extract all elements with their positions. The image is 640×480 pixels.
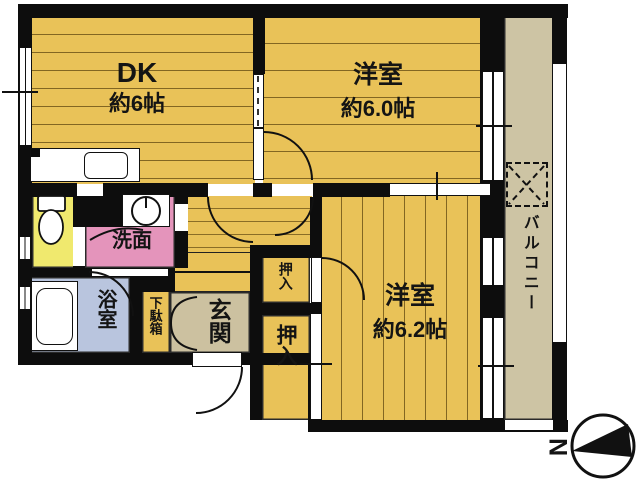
- kitchen-stove-dot: [31, 149, 40, 157]
- door-leaf-closet-small: [311, 257, 322, 303]
- tick-window-bedroom2: [478, 365, 514, 367]
- hallway-floor: [186, 195, 312, 252]
- label-bedroom1-name: 洋室: [330, 62, 426, 88]
- label-dk-name: DK: [92, 58, 182, 87]
- tick-window-dk: [2, 91, 38, 93]
- window-bedroom2-balcony-upper: [482, 238, 504, 285]
- window-toilet-left: [19, 237, 31, 259]
- label-bedroom2-name: 洋室: [362, 283, 458, 309]
- label-closet-small: 押入: [278, 262, 293, 290]
- room-toilet-floor: [32, 193, 75, 268]
- door-arc-entrance: [196, 367, 242, 413]
- tick-window-bedroom1: [476, 125, 512, 127]
- label-dk-size: 約6帖: [82, 92, 192, 115]
- wall-balcony-right-top: [552, 4, 567, 66]
- window-bedroom2-balcony-lower: [482, 318, 504, 418]
- balcony-sill: [505, 420, 553, 430]
- label-washroom: 洗面: [101, 231, 163, 252]
- tick-closet-slider: [300, 363, 332, 365]
- wall-mid-1: [32, 183, 77, 197]
- kitchen-sink: [84, 152, 128, 179]
- label-bathroom: 浴室: [94, 289, 115, 329]
- balcony-railing: [552, 64, 567, 342]
- wall-mid-3: [313, 183, 390, 197]
- doorway-bedroom1: [272, 184, 313, 196]
- washing-machine-box: [122, 194, 170, 227]
- doorway-dk-hall: [208, 184, 253, 196]
- opening-dk-washroom: [77, 184, 103, 196]
- tick-partition: [436, 172, 438, 200]
- sliding-door-dashed-track: [257, 76, 259, 126]
- bathtub: [36, 288, 73, 345]
- doorway-washroom: [175, 204, 188, 231]
- wall-dk-bedroom1-divider: [253, 16, 265, 74]
- wall-balcony-right-bottom: [552, 342, 567, 432]
- label-closet-large: 押入: [274, 324, 296, 366]
- compass: [572, 415, 634, 477]
- compass-needle: [572, 424, 632, 457]
- washer-pan-balcony: [506, 162, 548, 207]
- window-dk-left: [19, 48, 32, 145]
- door-leaf-bedroom1: [253, 128, 264, 180]
- label-shoe-cabinet: 下駄箱: [148, 296, 162, 335]
- sliding-door-closet-large: [310, 314, 322, 419]
- wall-mid-pillar: [253, 183, 272, 197]
- door-toilet: [73, 227, 85, 266]
- window-bathroom-left: [19, 287, 31, 309]
- wall-closet-left: [250, 245, 262, 420]
- label-bedroom2-size: 約6.2帖: [358, 318, 462, 341]
- wall-bathroom-right: [130, 277, 142, 353]
- label-balcony: バルコニー: [520, 214, 537, 314]
- compass-circle: [572, 415, 634, 477]
- washroom-duct-wall: [85, 193, 122, 227]
- threshold-washroom-bath: [92, 269, 168, 276]
- entrance-step-line: [173, 271, 250, 273]
- entrance-door: [192, 352, 242, 367]
- sliding-partition-bedrooms: [390, 183, 490, 196]
- label-entrance: 玄関: [206, 298, 230, 344]
- floor-plan: DK 約6帖 洋室 約6.0帖 洋室 約6.2帖 洗面 浴室 玄関 下駄箱 押入…: [0, 0, 640, 480]
- compass-north-label: N: [546, 432, 572, 462]
- label-bedroom1-size: 約6.0帖: [325, 97, 431, 120]
- wall-hall-bedroom2: [310, 197, 322, 258]
